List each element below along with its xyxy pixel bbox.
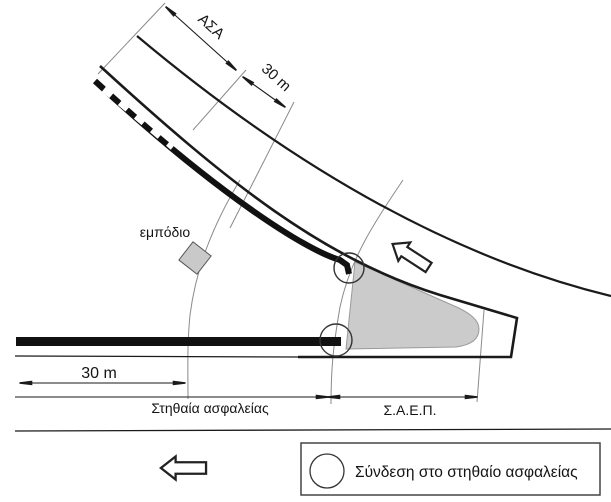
label-barrier-span: Στηθαία ασφαλείας (151, 400, 269, 416)
label-asa: ΑΣΑ (194, 11, 227, 43)
label-30m-top: 30 m (258, 60, 294, 95)
guardrail-curved (95, 81, 349, 274)
legend-box: Σύνδεση στο στηθαίο ασφαλείας (301, 443, 600, 495)
extension-line-30m-top-end (230, 102, 294, 228)
secondary-road-bottom-edge (15, 429, 611, 431)
label-obstacle: εμπόδιο (140, 224, 191, 240)
obstacle-square (179, 242, 211, 274)
crash-cushion-area (346, 262, 479, 349)
legend-label: Σύνδεση στο στηθαίο ασφαλείας (355, 464, 578, 481)
label-30m-bottom: 30 m (81, 365, 117, 382)
road-terminal-diagram: ΑΣΑ 30 m εμπόδιο 30 m Στηθαία ασφαλείας … (0, 0, 611, 502)
secondary-road-top-edge (15, 356, 298, 357)
extension-line-asa-start (98, 3, 165, 74)
diagram-canvas: ΑΣΑ 30 m εμπόδιο 30 m Στηθαία ασφαλείας … (0, 0, 611, 502)
clearance-curve-left (188, 180, 240, 399)
direction-arrow-main-road-icon (387, 235, 435, 277)
direction-arrow-secondary-road-icon (161, 456, 206, 479)
label-saep-span: Σ.Α.Ε.Π. (384, 402, 437, 418)
